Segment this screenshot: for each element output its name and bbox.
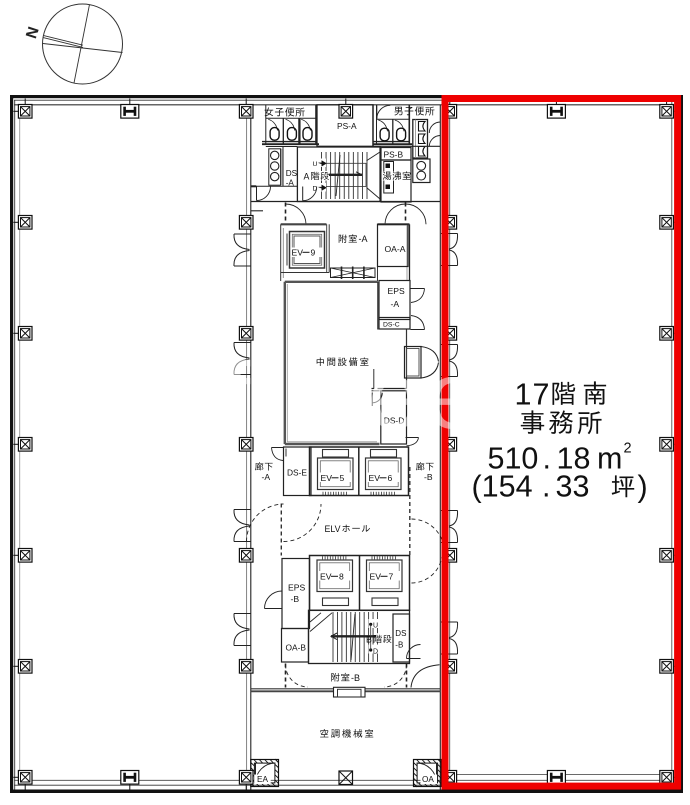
svg-text:OA-A: OA-A [385,244,406,254]
svg-text:EV: EV [292,247,304,257]
svg-text:EV: EV [369,473,381,483]
svg-text:8: 8 [339,571,344,581]
svg-text:-B: -B [291,594,300,604]
svg-text:B: B [366,634,372,644]
svg-text:9: 9 [311,247,316,257]
svg-text:33: 33 [556,470,590,504]
svg-text:U: U [313,161,318,168]
svg-text:(154: (154 [472,470,533,504]
svg-text:DS: DS [286,169,298,178]
svg-text:EPS: EPS [388,286,405,296]
svg-text:6: 6 [388,473,393,483]
svg-text:-B: -B [395,640,403,649]
svg-text:-B: -B [424,472,433,482]
svg-text:EV: EV [321,473,333,483]
svg-text:.: . [542,470,550,504]
svg-text:-A: -A [262,472,271,482]
svg-text:EPS: EPS [288,582,305,592]
svg-text:OA: OA [422,775,434,784]
svg-text:-B: -B [351,673,360,683]
svg-text:PS-B: PS-B [384,149,404,159]
svg-text:ELV: ELV [325,524,341,534]
svg-text:A: A [304,171,310,181]
svg-text:m: m [597,442,622,476]
svg-text:7: 7 [389,571,394,581]
svg-text:-A: -A [359,234,368,244]
svg-text:2: 2 [624,441,632,457]
svg-text:OA-B: OA-B [286,642,307,652]
svg-text:17: 17 [515,378,551,412]
svg-text:5: 5 [340,473,345,483]
svg-text:-A: -A [391,299,400,309]
svg-text:D: D [373,648,378,655]
svg-text:DS: DS [395,629,406,638]
svg-text:EV: EV [370,571,382,581]
svg-text:U: U [373,623,378,630]
svg-text:DS-C: DS-C [383,322,400,329]
svg-text:officee: officee [165,343,485,449]
svg-text:EA: EA [257,775,268,784]
svg-text:EV: EV [320,571,332,581]
svg-text:PS-A: PS-A [337,121,357,131]
svg-text:): ) [638,470,648,504]
svg-text:-A: -A [286,179,295,188]
svg-text:DS-E: DS-E [287,467,307,477]
